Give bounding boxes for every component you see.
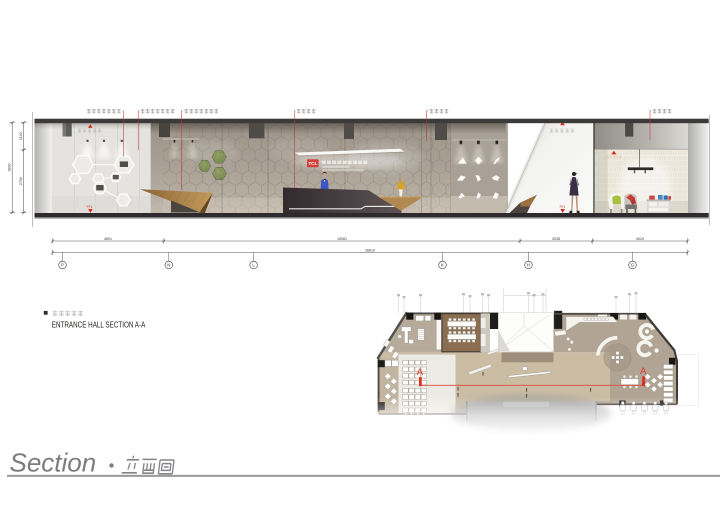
svg-text:1130: 1130 [19,132,23,140]
svg-text:P: P [61,263,64,268]
svg-text:4691: 4691 [104,237,112,241]
svg-text:A: A [417,367,424,378]
svg-text:TCL: TCL [308,161,317,166]
svg-text:2700: 2700 [19,177,23,185]
svg-text:FFL: FFL [560,205,566,209]
svg-text:3038: 3038 [552,237,560,241]
svg-text:N: N [167,263,170,268]
svg-text:A: A [640,366,647,377]
svg-text:Section: Section [10,448,97,478]
svg-text:FFL: FFL [87,205,93,209]
svg-text:ENTRANCE HALL SECTION A-A: ENTRANCE HALL SECTION A-A [52,319,146,329]
svg-text:4020: 4020 [636,237,644,241]
svg-text:K: K [441,263,444,268]
svg-text:G: G [631,263,635,268]
svg-text:3830: 3830 [8,164,12,172]
svg-text:15081: 15081 [337,237,347,241]
svg-text:26810: 26810 [365,248,375,252]
svg-text:H: H [527,263,530,268]
